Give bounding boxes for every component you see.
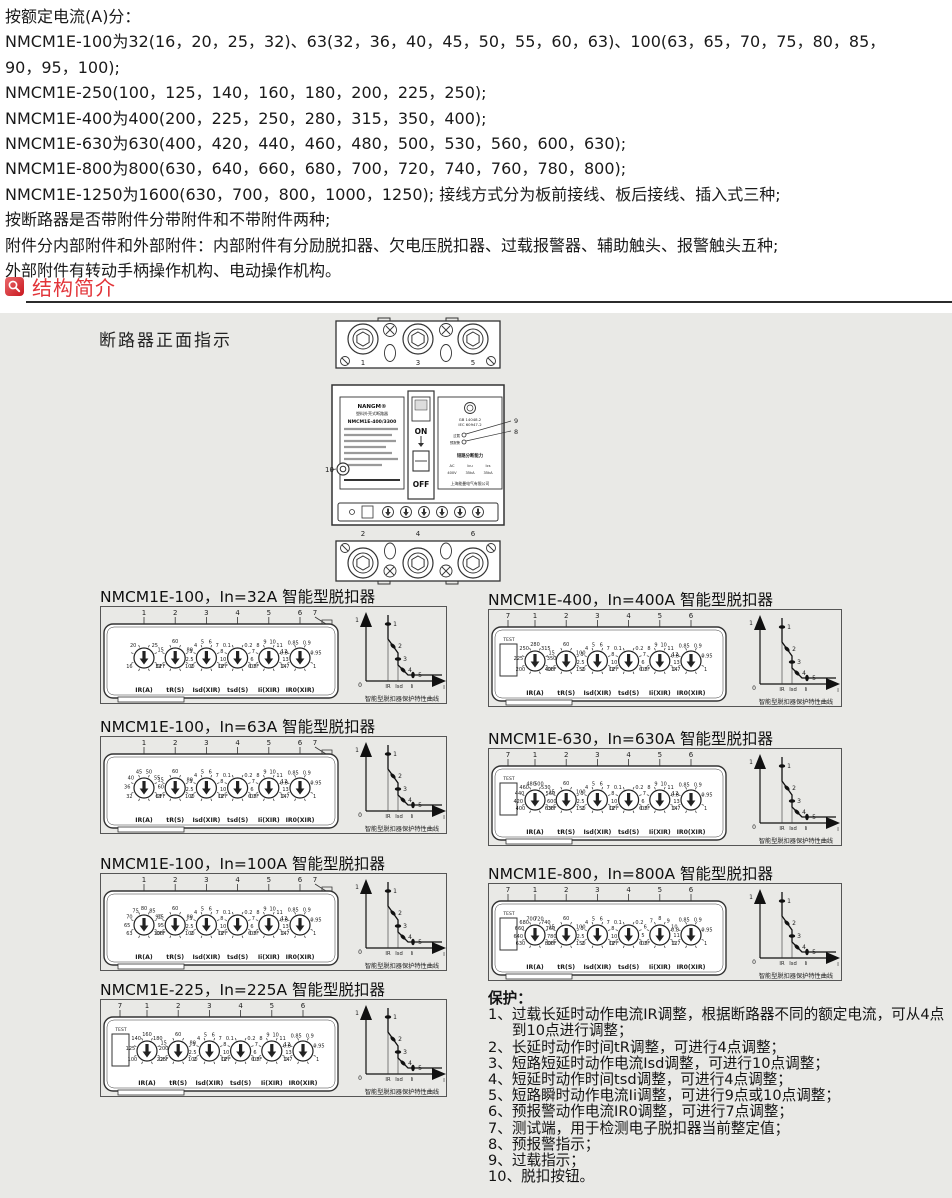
trip-unit-panel: IR(A)6365707580859095100tR(S)OFF15608010… [100,873,447,971]
protection-item-text: 长延时动作时间tR调整，可进行4点调整； [512,1040,950,1056]
dial-value-label: 45 [136,770,142,776]
y-axis-label: 1 [355,747,359,754]
trip-unit-panel: TESTIR(A)400420440460480500530560600630t… [488,748,842,846]
dial-value-label: 0.1 [226,1036,234,1042]
dial-value-label: 11 [279,1036,285,1042]
dial-value-label: OFF [249,664,259,670]
dial-value-label: 6 [209,639,212,645]
dial-value-label: 640 [513,934,523,940]
curve-marker-icon [395,1050,401,1054]
dial-value-label: 7 [643,652,646,658]
dial-value-label: 8 [611,791,614,797]
curve-marker-number: 3 [403,1049,407,1056]
origin-label: 0 [358,1075,362,1082]
dial-label: tR(S) [166,817,184,824]
dial-label: IR(A) [135,954,153,961]
dial-value-label: 8 [658,916,661,922]
dial-value-label: OFF [249,931,259,937]
curve-marker-icon [411,1065,415,1071]
dial-value-label: 36 [124,785,130,791]
x-axis-label: I [443,685,445,691]
breaker-front-diagram: 1 3 5 NANGM® 塑料外壳式断路器 NMCM1E-400/3300 [318,317,518,585]
callout-number: 10 [325,466,334,474]
led-label: 过载 [453,433,460,438]
dial-value-label: 0.7 [281,664,289,670]
dial-value-label: OFF [640,941,650,947]
breaking-col: Icu [467,464,472,468]
dial-value-label: 70 [126,914,132,920]
dial-value-label: 0.8 [671,793,679,799]
dial-value-label: 6 [600,642,603,648]
protection-item-number: 1、 [488,1007,512,1039]
dial-label: IR(A) [135,817,153,824]
protection-item-number: 6、 [488,1104,512,1120]
curve-marker-number: 5 [812,949,816,956]
dial-value-label: 0.2 [244,643,252,649]
terminal-number: 6 [471,530,476,538]
dial-value-label: 140 [131,1036,141,1042]
x-tick-label: Ii [805,826,808,832]
dial-value-label: 0.9 [306,1033,314,1039]
faceplate-tab [506,839,572,844]
dial-value-label: 7 [252,916,255,922]
dial-value-label: OFF [159,1057,169,1063]
dial-value-label: 8 [259,1036,262,1042]
dial-label: Isd(XIR) [583,829,611,836]
dial-value-label: 85 [149,908,155,914]
dial-label: IR0(XIR) [286,954,315,961]
dial-label: tR(S) [166,954,184,961]
dial-value-label: 11 [276,643,282,649]
dial-value-label: 9 [263,906,266,912]
dial-value-label: 75 [132,908,138,914]
intro-line: NMCM1E-630为630(400，420，440，460，480，500，5… [5,131,885,156]
dial-value-label: 7 [216,773,219,779]
dial-value-label: OFF [252,1057,262,1063]
dial-value-label: 0.85 [288,770,299,776]
dial-value-label: OFF [249,794,259,800]
dial-value-label: 7 [607,920,610,926]
curve-marker-number: 2 [792,920,796,927]
dial-label: tR(S) [557,690,575,697]
dial-value-label: 6 [209,769,212,775]
intro-line: NMCM1E-1250为1600(630，700，800，1000，1250);… [5,182,885,207]
callout-number: 1 [533,612,537,620]
callout-number: 6 [301,1002,306,1010]
dial-value-label: OFF [221,1057,231,1063]
dial-value-label: 1 [313,931,316,937]
dial-value-label: 0.95 [701,928,712,934]
y-axis-arrow-icon [754,889,766,904]
terminal-lug-icon [348,548,488,578]
dial-value-label: 2 [581,667,584,673]
x-tick-label: IR [385,814,391,820]
curve-caption: 智能型脱扣器保护特性曲线 [759,698,833,706]
curve-caption: 智能型脱扣器保护特性曲线 [365,962,439,970]
callout-number: 1 [533,886,537,894]
callout-number: 7 [506,612,510,620]
curve-marker-icon [385,889,391,893]
dial-value-label: 3 [189,916,192,922]
dial-value-label: 4 [585,785,588,791]
dial-value-label: 440 [515,791,525,797]
dial-value-label: 4 [194,773,197,779]
dial-value-label: 7 [219,1036,222,1042]
callout-number: 6 [298,739,303,747]
panel-title: NMCM1E-800，In=800A 智能型脱扣器 [488,862,773,884]
magnifier-icon [5,277,24,296]
callout-line [315,884,326,891]
dial-value-label: 10 [269,769,275,775]
callout-number: 4 [235,609,240,617]
document-page: 按额定电流(A)分：NMCM1E-100为32(16，20，25，32)、63(… [0,0,952,1198]
dial-value-label: 5 [204,1032,207,1038]
y-axis-arrow-icon [360,742,372,757]
callout-number: 7 [313,876,317,884]
led-label: 预报警 [450,440,461,445]
curve-caption: 智能型脱扣器保护特性曲线 [759,837,833,845]
dial-value-label: 7 [255,1042,258,1048]
dial-value-label: 0.1 [223,643,231,649]
callout-line [315,617,326,624]
curve-marker-icon [385,1015,391,1019]
dial-value-label: 630 [516,941,526,947]
callout-number: 1 [142,876,146,884]
curve-marker-icon [789,660,795,664]
curve-marker-number: 4 [802,670,806,677]
breaking-val: 400V [447,471,457,475]
dial-value-label: 420 [513,799,523,805]
dial-value-label: 4 [585,920,588,926]
curve-marker-icon [411,672,415,678]
dial-value-label: 10 [269,906,275,912]
curve-marker-number: 3 [403,923,407,930]
callout-number: 4 [626,886,631,894]
dial-value-label: 60 [563,916,569,922]
dial-value-label: 0.1 [614,646,622,652]
dial-value-label: 8 [220,916,223,922]
dial-value-label: 9 [667,918,670,924]
protection-curve: 10IRIsdIiI12345智能型脱扣器保护特性曲线 [355,742,446,833]
breaking-val: 35kA [465,471,475,475]
breaker-nameplate: NANGM® 塑料外壳式断路器 NMCM1E-400/3300 [337,397,404,489]
dial-value-label: 9 [263,769,266,775]
callout-number: 1 [142,739,146,747]
faceplate-tab [118,697,184,702]
dial-value-label: 0.2 [635,920,643,926]
dial-value-label: 9 [654,642,657,648]
callout-number: 7 [506,751,510,759]
callout-number: 2 [173,876,177,884]
dial-value-label: 11 [667,646,673,652]
dial-value-label: 15 [157,914,163,920]
dial-value-label: 200 [516,667,526,673]
dial-value-label: 10 [272,1032,278,1038]
section-divider [26,301,952,303]
protection-curve: 10IRIsdIiI12345智能型脱扣器保护特性曲线 [749,889,840,980]
dial-value-label: 11 [667,785,673,791]
curve-caption: 智能型脱扣器保护特性曲线 [365,695,439,703]
dial-value-label: 60 [172,906,178,912]
dial-value-label: 60 [175,1032,181,1038]
intro-line: NMCM1E-250(100，125，140，160，180，200，225，2… [5,80,885,105]
dial-value-label: 1 [704,806,707,812]
dial-value-label: 8 [647,785,650,791]
dial-value-label: 3 [189,779,192,785]
dial-value-label: OFF [547,941,557,947]
protection-item: 4、短延时动作时间tsd调整，可进行4点调整； [488,1072,950,1088]
protection-curve: 10IRIsdIiI12345智能型脱扣器保护特性曲线 [749,615,840,706]
x-tick-label: Isd [395,814,403,820]
curve-marker-icon [411,939,415,945]
dial-value-label: 0.8 [283,1044,291,1050]
curve-marker-icon [395,657,401,661]
x-tick-label: IR [385,684,391,690]
standard-iec: IEC 60947-2 [458,422,482,427]
breaker-model: NMCM1E-400/3300 [348,419,397,425]
dial-value-label: 13 [673,660,679,666]
callout-number: 4 [235,876,240,884]
dial-value-label: OFF [609,667,619,673]
curve-marker-number: 5 [418,802,422,809]
dial-label: Ii(XIR) [258,817,280,824]
dial-value-label: 15 [548,650,554,656]
dial-value-label: 0.8 [280,918,288,924]
dial-value-label: 0.95 [701,654,712,660]
x-axis-label: I [443,1078,445,1084]
callout-number: 7 [506,886,510,894]
dial-label: IR(A) [526,964,544,971]
dial-value-label: 10 [269,639,275,645]
dial-value-label: 40 [128,775,134,781]
dial-value-label: 10 [611,799,617,805]
curve-marker-icon [789,934,795,938]
curve-caption: 智能型脱扣器保护特性曲线 [759,972,833,980]
dial-label: tR(S) [166,687,184,694]
dial-value-label: 0.85 [679,643,690,649]
x-tick-label: Isd [395,951,403,957]
dial-value-label: 9 [654,781,657,787]
dial-value-label: 0.95 [310,651,321,657]
dial-value-label: OFF [156,664,166,670]
dial-value-label: 10 [660,781,666,787]
curve-marker-number: 4 [408,797,412,804]
dial-label: IR0(XIR) [677,690,706,697]
dial-label: Isd(XIR) [192,687,220,694]
protection-curve: 10IRIsdIiI12345智能型脱扣器保护特性曲线 [355,879,446,970]
dial-value-label: 6 [209,906,212,912]
panel-title: NMCM1E-100，In=32A 智能型脱扣器 [100,585,375,607]
trip-unit-panel: TESTIR(A)200225250280315350400tR(S)OFF15… [488,609,842,707]
dial-value-label: 5 [201,906,204,912]
curve-marker-number: 5 [418,1065,422,1072]
dial-value-label: 280 [530,642,540,648]
dial-value-label: 0.2 [244,910,252,916]
dial-value-label: 2 [581,806,584,812]
dial-value-label: 0.2 [247,1036,255,1042]
dial-value-label: 2.5 [186,657,194,663]
protection-item-number: 10、 [488,1169,521,1185]
dial-value-label: 60 [172,769,178,775]
dial-label: tsd(S) [618,829,639,836]
dial-value-label: 0.8 [671,928,679,934]
trip-unit-panel: IR(A)3236404550556063tR(S)OFF156080100Is… [100,736,447,834]
origin-label: 0 [358,812,362,819]
dial-value-label: 5 [201,639,204,645]
dial-value-label: 0.9 [694,917,702,923]
y-axis-label: 1 [749,894,753,901]
dial-value-label: 2.5 [577,799,585,805]
breaker-bottom-terminal-plate [336,541,500,584]
trip-button [337,463,349,475]
dial-value-label: 250 [519,646,529,652]
y-axis-arrow-icon [360,879,372,894]
dial-value-label: 1 [316,1057,319,1063]
dial-value-label: OFF [609,806,619,812]
curve-marker-number: 1 [787,624,791,631]
x-tick-label: Ii [805,961,808,967]
dial-label: tsd(S) [227,817,248,824]
panel-title: NMCM1E-100，In=63A 智能型脱扣器 [100,715,375,737]
curve-caption: 智能型脱扣器保护特性曲线 [365,1088,439,1096]
origin-label: 0 [752,959,756,966]
y-axis-label: 1 [355,884,359,891]
x-tick-label: Ii [411,814,414,820]
dial-value-label: 0.95 [313,1044,324,1050]
intro-line: NMCM1E-400为400(200，225，250，280，315，350，4… [5,106,885,131]
panel-title: NMCM1E-630，In=630A 智能型脱扣器 [488,727,773,749]
dial-value-label: 8 [647,646,650,652]
dial-value-label: 8 [220,779,223,785]
dial-value-label: 15 [160,1040,166,1046]
dial-label: tsd(S) [227,954,248,961]
dial-value-label: 100 [128,1057,138,1063]
curve-caption: 智能型脱扣器保护特性曲线 [365,825,439,833]
callout-line [315,747,326,754]
dial-value-label: 0.95 [701,793,712,799]
dial-value-label: 8 [223,1042,226,1048]
dial-value-label: 13 [282,924,288,930]
protection-item: 10、脱扣按钮。 [488,1169,950,1185]
callout-number: 5 [267,609,271,617]
protection-curve: 10IRIsdIiI12345智能型脱扣器保护特性曲线 [749,754,840,845]
dial-value-label: 600 [547,799,557,805]
callout-number: 5 [267,739,271,747]
dial-value-label: 0.8 [671,654,679,660]
dial-value-label: 7 [643,791,646,797]
dial-value-label: 350 [547,656,557,662]
dial-value-label: 1 [704,941,707,947]
overload-led-icon [462,433,466,437]
protection-item: 9、过载指示； [488,1153,950,1169]
dial-value-label: 3 [580,926,583,932]
company-name: 上海能曼电气有限公司 [451,481,490,486]
dial-value-label: 160 [142,1032,152,1038]
test-label: TEST [502,776,514,782]
dial-value-label: 6 [600,916,603,922]
origin-label: 0 [358,949,362,956]
dial-value-label: 0.9 [303,640,311,646]
dial-value-label: 1 [313,664,316,670]
breaker-adjustment-strip [338,503,498,521]
dial-value-label: 6 [253,1050,256,1056]
dial-value-label: 0.1 [614,920,622,926]
callout-number: 5 [658,886,662,894]
x-axis-label: I [443,952,445,958]
curve-marker-number: 1 [787,763,791,770]
bottom-terminal-numbers: 2 4 6 [361,530,476,538]
y-axis-arrow-icon [754,754,766,769]
protection-item-number: 3、 [488,1056,512,1072]
curve-marker-number: 4 [408,1060,412,1067]
curve-marker-number: 1 [393,621,397,628]
x-axis-label: I [837,962,839,968]
dial-value-label: 7 [650,918,653,924]
dial-label: tsd(S) [227,687,248,694]
y-axis-arrow-icon [754,615,766,630]
dial-value-label: 80 [141,906,147,912]
dial-label: IR0(XIR) [677,964,706,971]
curve-marker-number: 2 [792,785,796,792]
brand-logo: NANGM® [358,404,387,410]
curve-marker-icon [805,814,809,820]
dial-value-label: 0.9 [303,770,311,776]
callout-number: 1 [145,1002,149,1010]
curve-marker-number: 3 [797,798,801,805]
dial-label: Ii(XIR) [649,829,671,836]
faceplate-tab [118,827,184,832]
dial-value-label: 2.5 [189,1050,197,1056]
breaking-col: Ics [486,464,491,468]
dial-value-label: 0.85 [291,1033,302,1039]
dial-value-label: 0.7 [672,667,680,673]
curve-marker-icon [779,625,785,629]
curve-marker-number: 1 [393,751,397,758]
dial-value-label: 13 [282,787,288,793]
dial-value-label: 8 [256,910,259,916]
curve-marker-icon [779,764,785,768]
x-tick-label: Isd [395,1077,403,1083]
dial-value-label: 6 [250,657,253,663]
panel-title: NMCM1E-225，In=225A 智能型脱扣器 [100,978,385,1000]
terminal-number: 2 [361,530,365,538]
y-axis-arrow-icon [360,612,372,627]
dial-value-label: 4 [194,643,197,649]
dial-label: Isd(XIR) [195,1080,223,1087]
callout-number: 2 [564,612,568,620]
origin-label: 0 [752,824,756,831]
dial-label: Ii(XIR) [258,954,280,961]
curve-marker-number: 2 [398,773,402,780]
dial-label: tsd(S) [618,964,639,971]
x-tick-label: IR [779,687,785,693]
dial-value-label: 0.1 [223,773,231,779]
protection-item-number: 9、 [488,1153,512,1169]
curve-marker-icon [385,622,391,626]
breaker-toggle: ON OFF [408,391,434,499]
prealarm-led-icon [462,440,466,444]
dial-value-label: 3 [580,791,583,797]
dial-value-label: 13 [673,799,679,805]
dial-value-label: 660 [515,926,525,932]
callout-number: 3 [595,751,599,759]
protection-item: 7、测试端，用于检测电子脱扣器当前整定值； [488,1121,950,1137]
callout-number: 2 [564,886,568,894]
indicator-led-icon [350,510,355,515]
panel-title: NMCM1E-100，In=100A 智能型脱扣器 [100,852,385,874]
protection-item-text: 预报警指示； [512,1137,950,1153]
callout-number: 6 [298,876,303,884]
